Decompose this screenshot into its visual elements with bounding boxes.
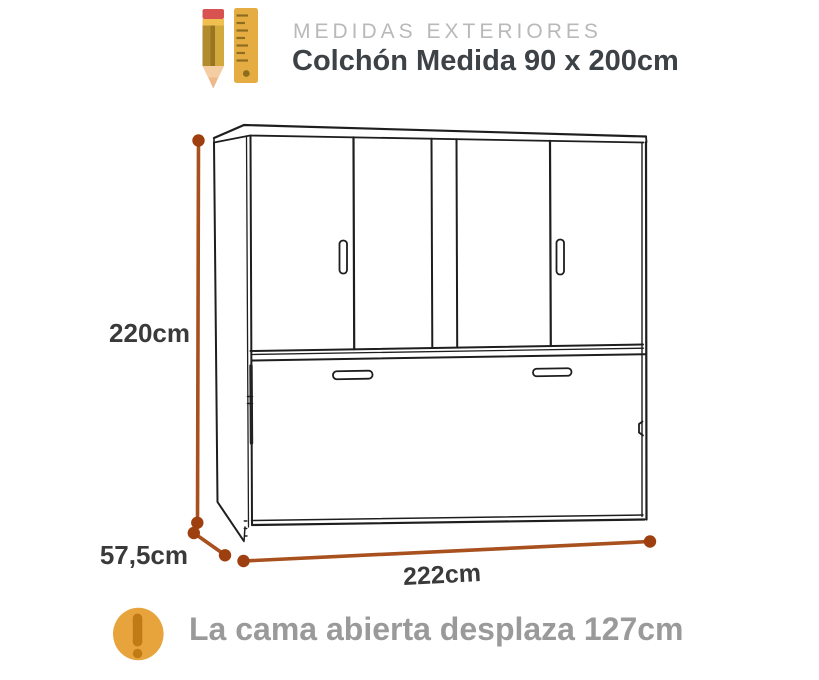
depth-dimension-label: 57,5cm (58, 542, 188, 568)
door-divider (457, 139, 458, 347)
cabinet-right-edge (642, 142, 647, 520)
door-divider (432, 139, 433, 348)
height-dimension-label: 220cm (60, 320, 190, 346)
width-dimension-line (244, 542, 651, 562)
pencil-icon (203, 9, 225, 89)
dimension-endpoint-dot (192, 134, 204, 146)
bed-handle (333, 371, 373, 380)
pencil-eraser (203, 9, 225, 19)
bed-panel-bottom-edge (252, 515, 645, 525)
exclamation-dot (133, 649, 142, 658)
cabinet-top-board (214, 125, 647, 143)
door-divider (550, 141, 551, 346)
bed-hinge-details (244, 366, 643, 536)
dimension-endpoint-dot (644, 535, 656, 547)
width-dimension-label: 222cm (399, 560, 484, 590)
ruler-dot (243, 70, 250, 77)
door-divider (354, 137, 355, 349)
section-title: MEDIDAS EXTERIORES (293, 20, 602, 44)
door-handle (340, 241, 348, 274)
bed-displacement-note: La cama abierta desplaza 127cm (189, 611, 684, 648)
ruler-icon (234, 8, 258, 83)
mattress-size-subtitle: Colchón Medida 90 x 200cm (292, 45, 679, 78)
dimension-endpoint-dot (188, 527, 200, 539)
pencil-ferrule (203, 19, 225, 26)
cabinet-bed-drawing (214, 125, 647, 542)
product-dimensions-figure: MEDIDAS EXTERIORES Colchón Medida 90 x 2… (0, 0, 819, 680)
bed-handle (533, 368, 572, 376)
exclamation-icon (113, 608, 164, 660)
dimension-endpoint-dot (237, 555, 249, 567)
dimension-endpoint-dot (219, 549, 231, 561)
cabinet-left-side-panel (214, 136, 252, 542)
door-dividers (354, 137, 551, 349)
height-dimension-line (198, 141, 199, 523)
middle-shelf-band (251, 345, 646, 361)
exclamation-bar (133, 614, 143, 647)
door-handle (557, 240, 565, 275)
